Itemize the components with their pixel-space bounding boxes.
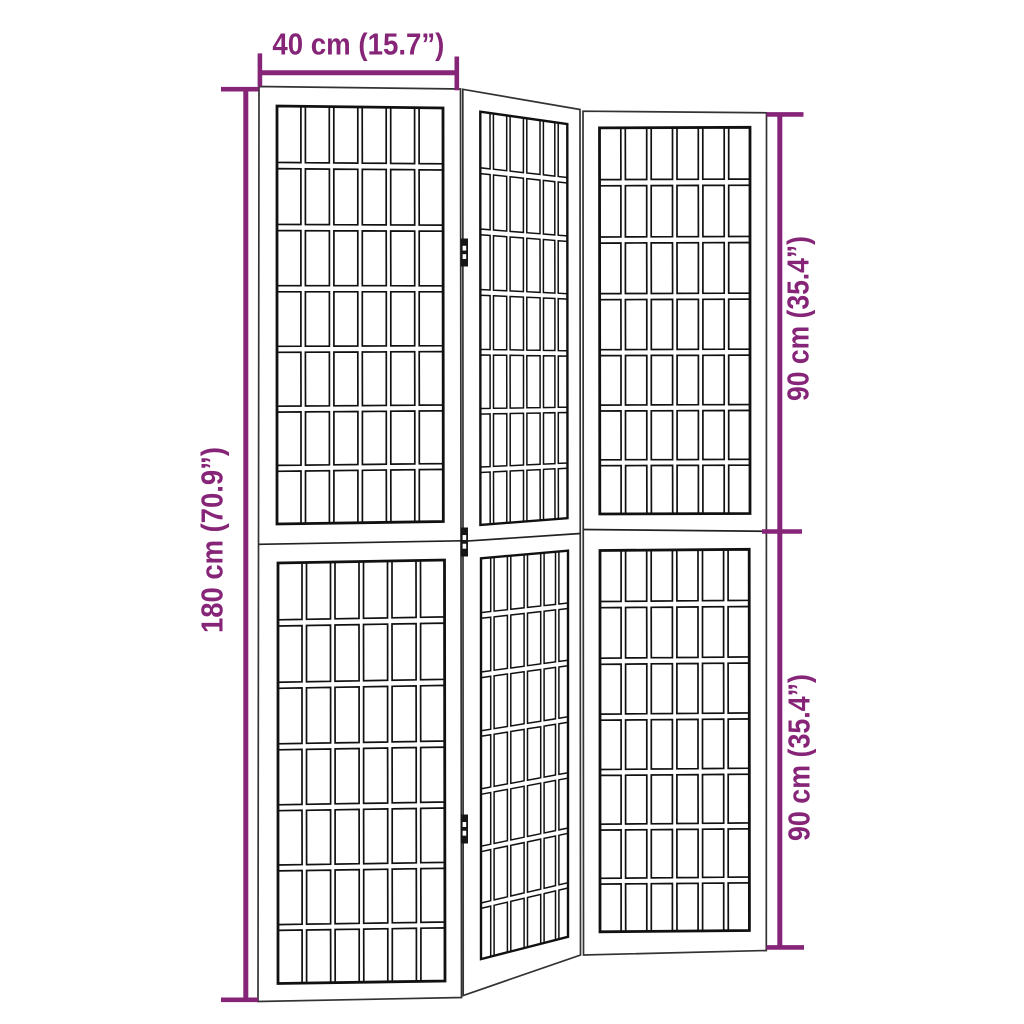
svg-text:180 cm (70.9”): 180 cm (70.9”) xyxy=(196,447,230,633)
svg-text:40 cm (15.7”): 40 cm (15.7”) xyxy=(272,27,444,61)
svg-text:90 cm (35.4”): 90 cm (35.4”) xyxy=(783,674,817,841)
svg-text:90 cm (35.4”): 90 cm (35.4”) xyxy=(782,236,816,401)
